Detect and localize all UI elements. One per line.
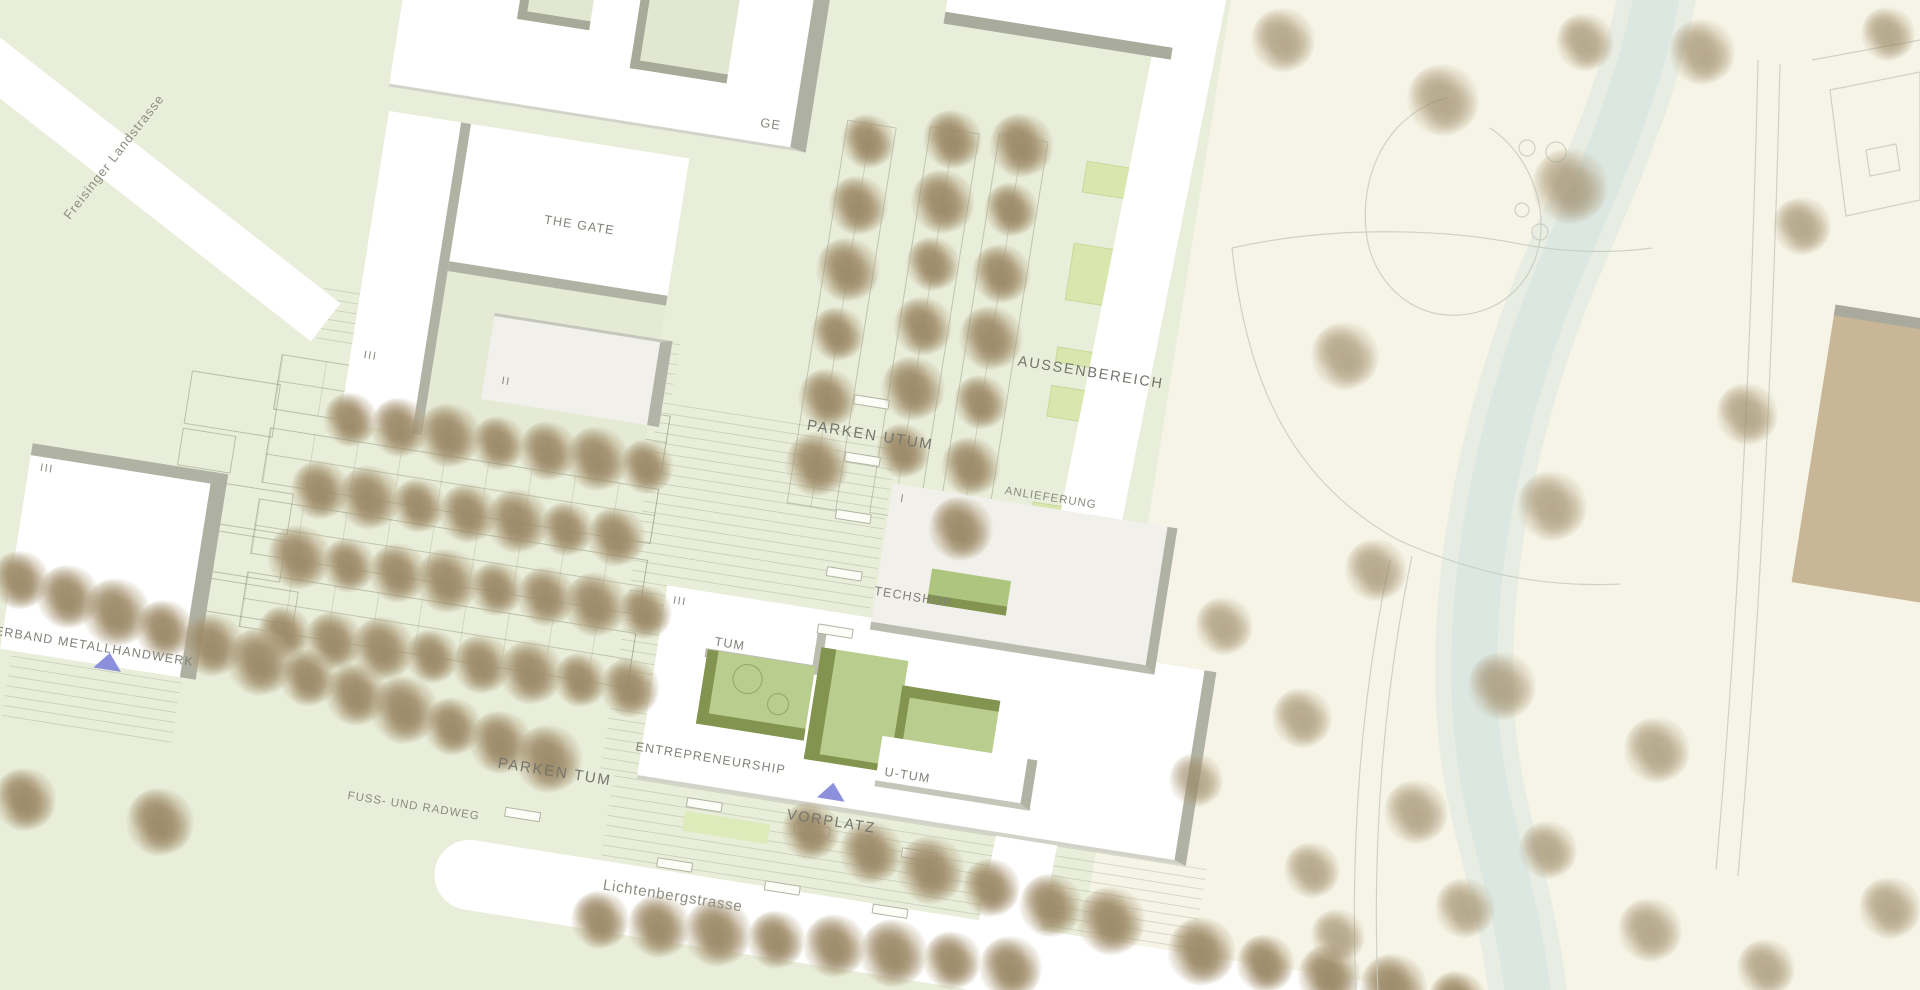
tree bbox=[1424, 967, 1490, 990]
tree bbox=[1354, 949, 1432, 990]
site-plan: GE THE GATE III II III VERBAND METALLHAN… bbox=[0, 0, 1920, 990]
lawn-tree-outline bbox=[730, 662, 764, 696]
tree bbox=[1232, 930, 1298, 990]
building-east-brown bbox=[1792, 305, 1920, 611]
plan-rotated-layer: GE THE GATE III II III VERBAND METALLHAN… bbox=[0, 0, 1920, 990]
floor-mark-gate: III bbox=[363, 349, 378, 363]
lawn-tree-outline bbox=[765, 692, 790, 717]
floor-mark-verband: III bbox=[39, 462, 54, 476]
building-label-ge: GE bbox=[759, 115, 782, 133]
floor-mark-inner: II bbox=[501, 375, 512, 388]
tree bbox=[1293, 940, 1365, 990]
floor-mark-entrepreneurship: III bbox=[672, 594, 687, 608]
